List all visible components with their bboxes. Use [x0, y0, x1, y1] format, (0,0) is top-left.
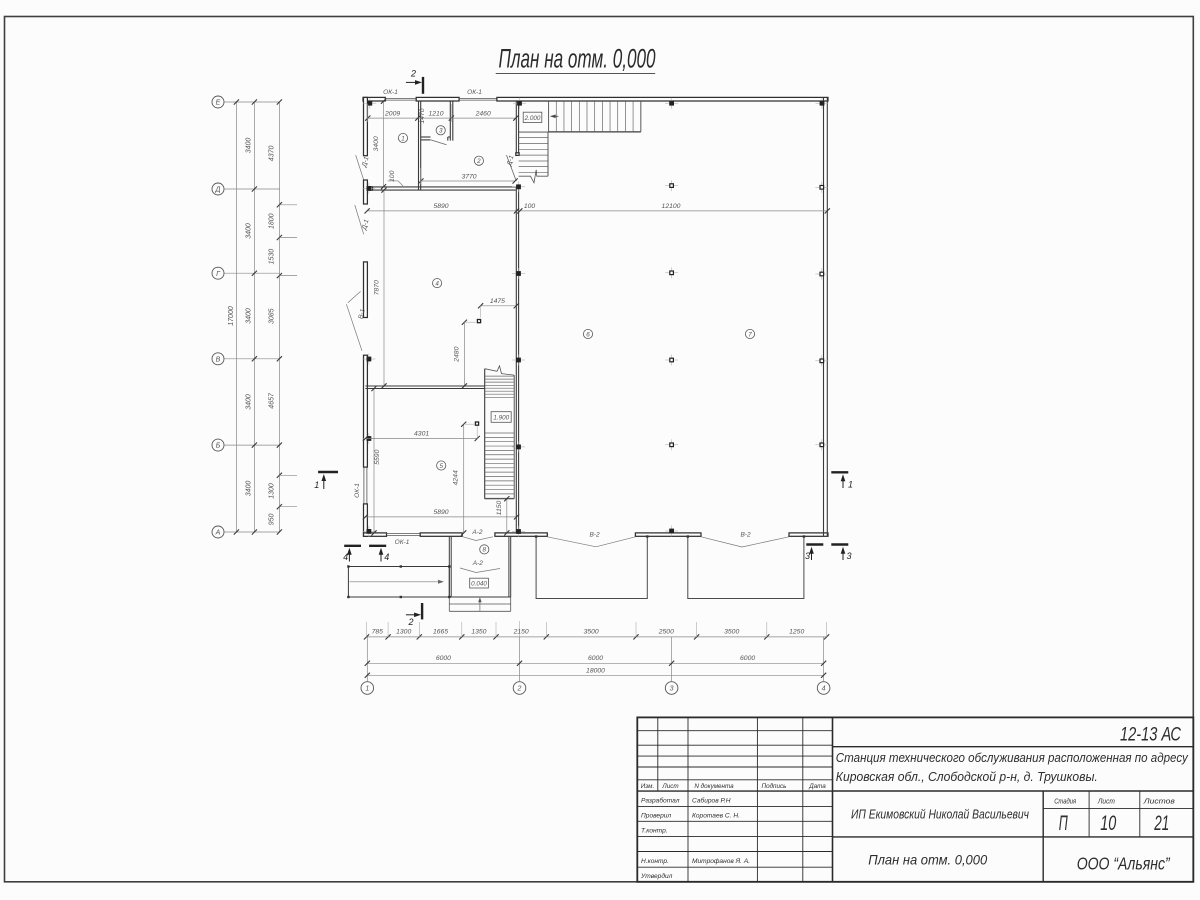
- svg-text:6000: 6000: [436, 655, 451, 662]
- svg-text:Разработал: Разработал: [641, 797, 680, 805]
- svg-text:0.040: 0.040: [471, 581, 487, 588]
- svg-text:ИП Екимовский Николай Васильев: ИП Екимовский Николай Васильевич: [851, 808, 1029, 822]
- svg-text:3: 3: [439, 128, 443, 135]
- svg-text:1665: 1665: [433, 629, 448, 636]
- svg-text:1300: 1300: [396, 629, 411, 636]
- svg-text:Подпись: Подпись: [762, 782, 787, 790]
- svg-text:1: 1: [314, 480, 319, 490]
- svg-text:3400: 3400: [246, 223, 253, 239]
- svg-text:1: 1: [401, 135, 405, 142]
- svg-text:Г: Г: [216, 271, 221, 278]
- svg-text:1530: 1530: [269, 249, 276, 265]
- svg-text:3400: 3400: [246, 394, 253, 410]
- svg-text:Станция технического обслужива: Станция технического обслуживания распол…: [836, 750, 1189, 765]
- svg-text:10: 10: [1100, 812, 1116, 835]
- svg-text:785: 785: [372, 629, 384, 636]
- svg-text:1: 1: [848, 480, 853, 490]
- svg-text:1: 1: [365, 686, 369, 693]
- svg-text:4: 4: [343, 552, 348, 562]
- svg-text:Е: Е: [216, 100, 221, 107]
- svg-text:1475: 1475: [490, 298, 505, 305]
- svg-text:950: 950: [269, 513, 276, 525]
- svg-text:Т.контр.: Т.контр.: [641, 828, 668, 835]
- svg-text:2: 2: [410, 69, 416, 79]
- svg-text:Изм.: Изм.: [641, 783, 654, 790]
- svg-text:А: А: [215, 530, 221, 537]
- svg-text:Н.контр.: Н.контр.: [641, 858, 669, 865]
- svg-text:6: 6: [586, 331, 590, 338]
- svg-text:П: П: [1059, 812, 1068, 835]
- svg-text:4: 4: [435, 280, 439, 287]
- svg-text:4244: 4244: [453, 470, 460, 485]
- svg-text:2: 2: [517, 686, 522, 693]
- svg-text:В: В: [216, 356, 221, 363]
- svg-text:12-13 АС: 12-13 АС: [1120, 725, 1181, 746]
- svg-text:100: 100: [389, 170, 396, 182]
- svg-text:7: 7: [748, 331, 752, 338]
- svg-text:Коротаев С. Н.: Коротаев С. Н.: [692, 813, 740, 820]
- svg-text:3400: 3400: [373, 136, 380, 151]
- svg-text:2009: 2009: [384, 110, 400, 117]
- svg-text:4657: 4657: [269, 392, 276, 409]
- svg-text:100: 100: [524, 203, 536, 210]
- svg-text:ОК-1: ОК-1: [383, 89, 398, 96]
- svg-text:Д-1: Д-1: [361, 218, 371, 231]
- svg-text:Д-1: Д-1: [361, 156, 371, 169]
- svg-text:4301: 4301: [414, 431, 429, 438]
- svg-text:21: 21: [1154, 812, 1170, 835]
- svg-text:3085: 3085: [269, 308, 276, 324]
- svg-text:Митрофанов Я. А.: Митрофанов Я. А.: [692, 858, 750, 865]
- svg-text:3400: 3400: [246, 308, 253, 324]
- svg-text:1470: 1470: [419, 108, 426, 123]
- svg-text:2: 2: [407, 617, 413, 627]
- svg-text:Дата: Дата: [808, 783, 826, 790]
- svg-text:2500: 2500: [658, 629, 674, 636]
- svg-text:ОК-1: ОК-1: [395, 539, 410, 546]
- svg-text:N документа: N документа: [694, 782, 734, 790]
- svg-text:7870: 7870: [374, 280, 381, 295]
- svg-text:3: 3: [846, 551, 851, 561]
- svg-text:Утвердил: Утвердил: [640, 872, 673, 880]
- svg-text:1350: 1350: [471, 629, 486, 636]
- svg-text:Листов: Листов: [1143, 797, 1175, 806]
- svg-text:1210: 1210: [428, 110, 443, 117]
- svg-text:Д: Д: [215, 187, 221, 194]
- svg-text:1800: 1800: [269, 213, 276, 229]
- svg-text:А-2: А-2: [472, 560, 484, 567]
- svg-text:1300: 1300: [269, 483, 276, 499]
- svg-text:6000: 6000: [588, 655, 603, 662]
- svg-text:Сабиров Р.Н: Сабиров Р.Н: [692, 797, 731, 805]
- svg-text:6000: 6000: [740, 655, 755, 662]
- svg-text:17000: 17000: [228, 306, 235, 326]
- svg-text:4370: 4370: [269, 146, 276, 162]
- svg-text:2.000: 2.000: [524, 115, 541, 122]
- svg-text:1250: 1250: [789, 629, 804, 636]
- svg-text:1150: 1150: [496, 500, 503, 515]
- svg-text:3500: 3500: [584, 629, 599, 636]
- svg-text:3400: 3400: [246, 481, 253, 497]
- svg-text:Кировская обл., Слободской р-н: Кировская обл., Слободской р-н, д. Трушк…: [836, 769, 1098, 784]
- svg-text:8: 8: [483, 547, 487, 554]
- svg-text:ОК-1: ОК-1: [467, 89, 482, 96]
- svg-text:3: 3: [670, 686, 674, 693]
- svg-text:2460: 2460: [475, 110, 491, 117]
- svg-text:Лист: Лист: [661, 783, 678, 790]
- svg-text:В-2: В-2: [740, 532, 751, 539]
- svg-text:5890: 5890: [433, 203, 448, 210]
- svg-text:ОК-1: ОК-1: [354, 483, 361, 498]
- svg-text:3400: 3400: [246, 138, 253, 154]
- svg-text:5890: 5890: [433, 509, 448, 516]
- svg-text:1.900: 1.900: [493, 415, 509, 422]
- svg-text:Стадия: Стадия: [1054, 797, 1076, 806]
- svg-text:3: 3: [805, 551, 810, 561]
- svg-text:2150: 2150: [513, 629, 529, 636]
- svg-text:Лист: Лист: [1097, 797, 1115, 806]
- svg-text:3770: 3770: [461, 173, 476, 180]
- svg-text:План на отм. 0,000: План на отм. 0,000: [868, 852, 987, 868]
- svg-text:В-2: В-2: [589, 532, 600, 539]
- svg-text:18000: 18000: [586, 667, 605, 674]
- svg-text:5: 5: [439, 463, 443, 470]
- svg-text:5590: 5590: [374, 449, 381, 464]
- svg-text:2: 2: [476, 158, 481, 165]
- svg-text:А-2: А-2: [471, 529, 483, 536]
- svg-text:ООО “Альянс”: ООО “Альянс”: [1077, 854, 1171, 874]
- svg-text:План на отм. 0,000: План на отм. 0,000: [499, 44, 656, 74]
- svg-text:3500: 3500: [724, 629, 739, 636]
- svg-text:4: 4: [822, 686, 826, 693]
- svg-text:12100: 12100: [662, 203, 681, 210]
- svg-text:2480: 2480: [454, 346, 461, 362]
- svg-text:4: 4: [384, 552, 389, 562]
- svg-text:Проверил: Проверил: [641, 813, 671, 820]
- svg-text:Б: Б: [216, 443, 221, 450]
